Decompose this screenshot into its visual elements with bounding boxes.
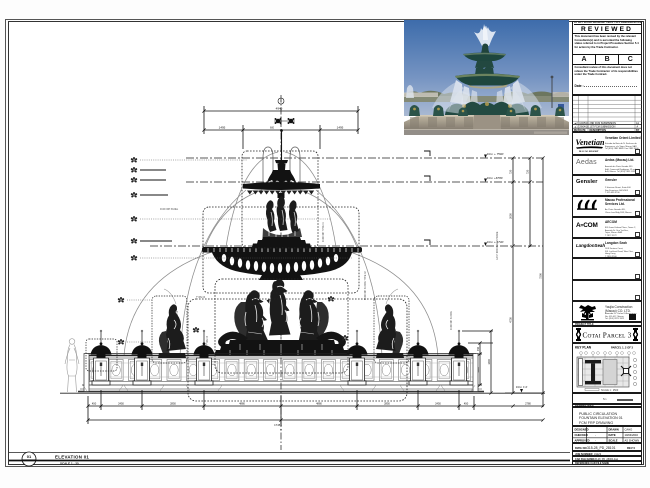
svg-text:2050: 2050 [509, 213, 513, 219]
svg-text:CHECKED: CHECKED [575, 433, 588, 437]
svg-text:COTAI PARCEL 3: COTAI PARCEL 3 [583, 332, 632, 340]
svg-text:FCM FRP PANEL: FCM FRP PANEL [160, 208, 179, 211]
svg-text:720: 720 [526, 169, 530, 174]
svg-text:SCALE 1 : 25: SCALE 1 : 25 [60, 462, 79, 466]
svg-text:TYPE 03: TYPE 03 [207, 335, 209, 345]
svg-text:2450: 2450 [118, 401, 124, 405]
svg-text:4940: 4940 [276, 107, 283, 111]
svg-text:-: - [595, 434, 596, 437]
svg-text:1800: 1800 [488, 359, 491, 365]
svg-text:720: 720 [509, 169, 513, 174]
svg-text:01: 01 [27, 454, 32, 459]
svg-text:450: 450 [477, 346, 480, 351]
svg-text:CAST IRON BALUSTRADE: CAST IRON BALUSTRADE [496, 231, 499, 260]
svg-text:17456: 17456 [274, 423, 282, 427]
svg-text:2450: 2450 [435, 401, 441, 405]
svg-text:7500: 7500 [539, 273, 543, 279]
svg-text:1495: 1495 [337, 126, 344, 130]
svg-text:2780: 2780 [525, 401, 531, 405]
svg-text:DESIGNED: DESIGNED [575, 428, 589, 432]
svg-text:4880: 4880 [316, 401, 322, 405]
svg-text:DATE: DATE [608, 433, 615, 437]
svg-text:1495: 1495 [219, 126, 226, 130]
svg-text:SCALE 1 : 2500: SCALE 1 : 2500 [601, 389, 619, 392]
svg-text:FCM FRP SCOPE TYPE 02: FCM FRP SCOPE TYPE 02 [365, 271, 367, 300]
svg-text:-: - [595, 440, 596, 443]
svg-text:2ND FCM SUBMISSION: 2ND FCM SUBMISSION [590, 122, 617, 125]
svg-text:CAHO: CAHO [624, 428, 632, 432]
svg-text:1ST FCM SUBMISSION: 1ST FCM SUBMISSION [590, 125, 616, 128]
svg-text:ELEVATION 01: ELEVATION 01 [55, 455, 89, 460]
svg-text:2850: 2850 [170, 401, 176, 405]
svg-text:1: 1 [280, 100, 282, 104]
svg-text:450: 450 [464, 401, 469, 405]
svg-text:29/04/16: 29/04/16 [579, 125, 589, 128]
svg-text:4880: 4880 [239, 401, 245, 405]
svg-text:450: 450 [92, 401, 97, 405]
svg-text:Ω: Ω [280, 429, 282, 432]
svg-text:SCALE: SCALE [608, 439, 617, 443]
svg-text:F.F.L + 4730: F.F.L + 4730 [487, 240, 504, 244]
svg-text:KEY PLAN: KEY PLAN [575, 346, 592, 350]
svg-text:DRAWN: DRAWN [608, 428, 618, 432]
svg-text:Venetian: Venetian [576, 138, 605, 147]
svg-text:4730: 4730 [509, 317, 513, 323]
svg-text:APPROVED: APPROVED [575, 439, 590, 443]
svg-text:10/04/2016: 10/04/2016 [624, 433, 638, 437]
svg-text:10/05/16: 10/05/16 [579, 122, 589, 125]
svg-text:F.F.L ± 0: F.F.L ± 0 [516, 385, 527, 389]
svg-text:F.F.L + 7500: F.F.L + 7500 [487, 152, 504, 156]
svg-text:F.F.L +6780: F.F.L +6780 [487, 176, 503, 180]
svg-text:600: 600 [270, 127, 275, 130]
svg-text:AS SHOWN: AS SHOWN [624, 439, 639, 443]
svg-text:FCM FRP TYPE 01: FCM FRP TYPE 01 [323, 221, 325, 242]
svg-text:FCM FRP SCOPE: FCM FRP SCOPE [451, 311, 453, 330]
svg-text:MACAO RESORT: MACAO RESORT [579, 150, 599, 153]
svg-text:2850: 2850 [384, 401, 390, 405]
svg-text:PARCEL 1, 2 OF 3: PARCEL 1, 2 OF 3 [611, 346, 634, 350]
